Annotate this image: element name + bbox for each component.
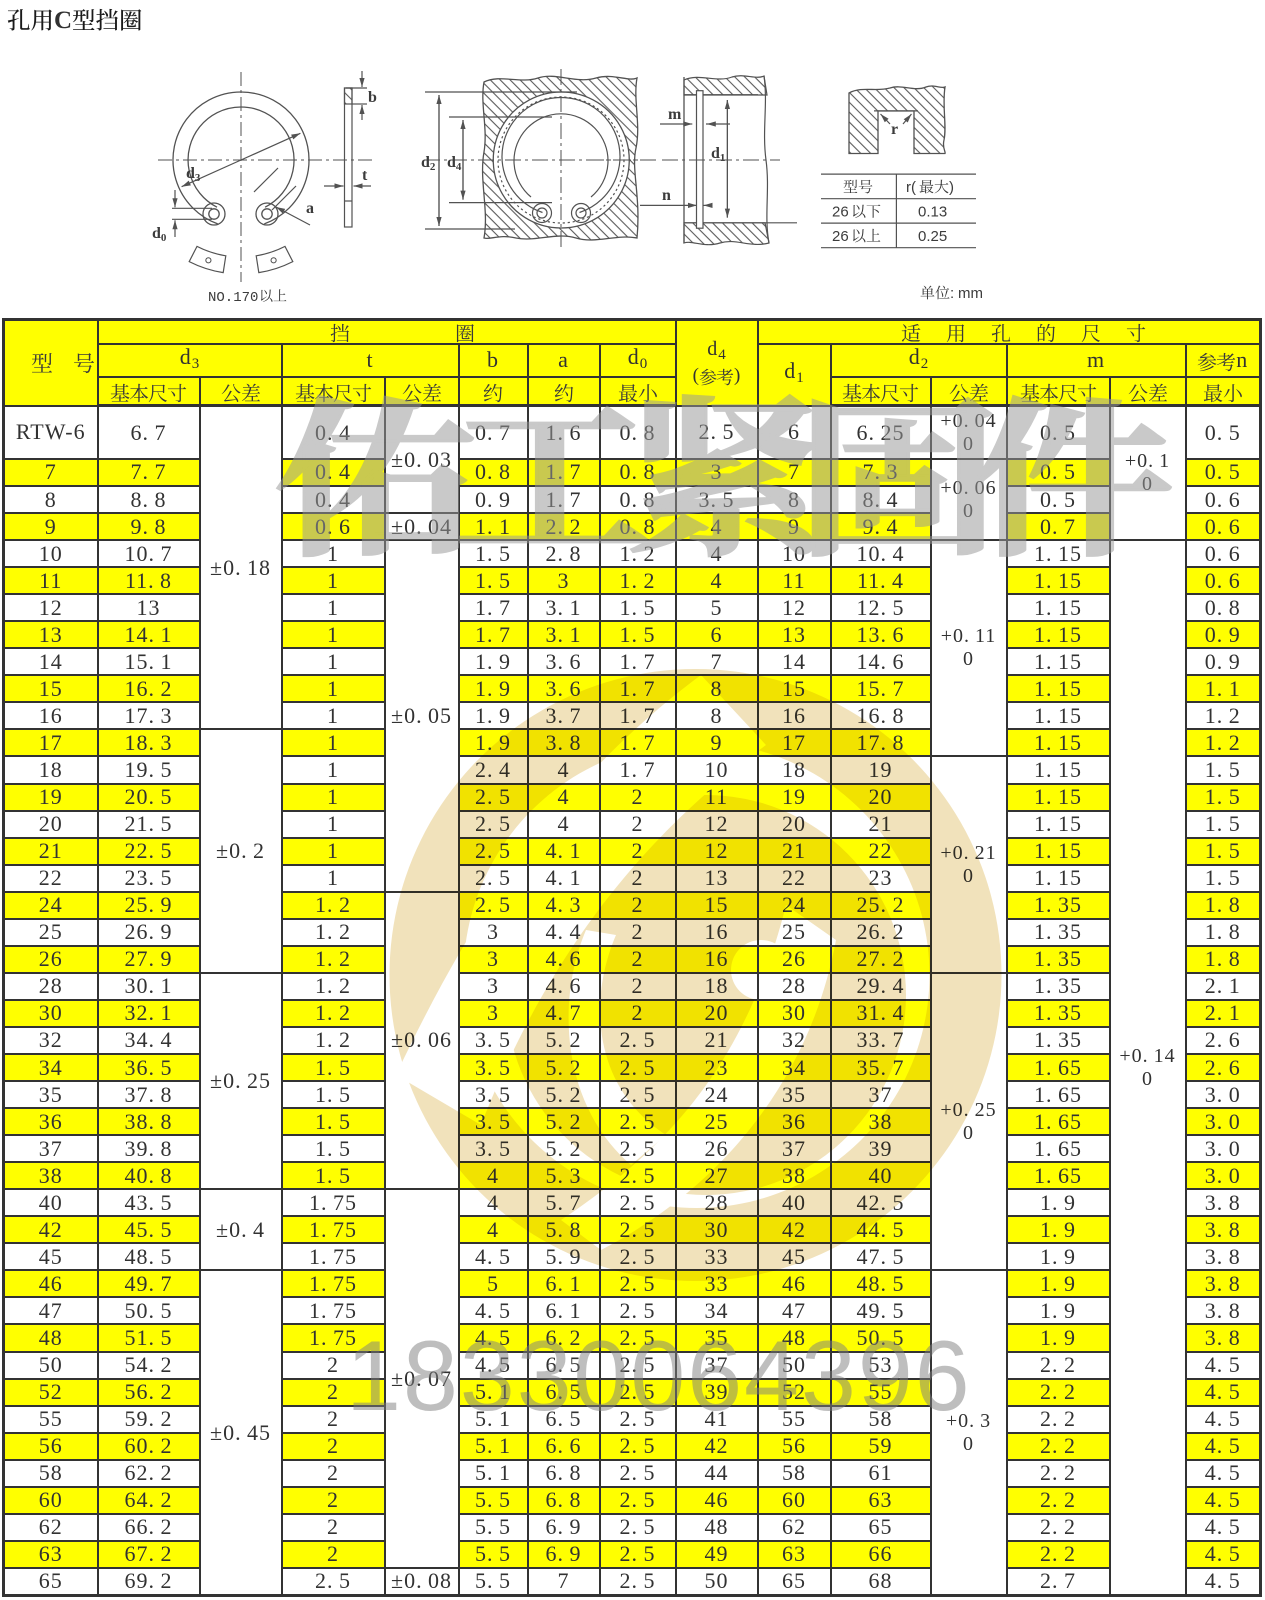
- svg-text:d0: d0: [152, 225, 167, 244]
- svg-text:b: b: [368, 89, 377, 106]
- svg-text:d2: d2: [421, 154, 436, 173]
- svg-text:r: r: [891, 121, 898, 138]
- svg-text:d4: d4: [447, 154, 462, 173]
- svg-text:n: n: [662, 187, 671, 204]
- svg-text:NO.170: NO.170: [208, 290, 258, 306]
- svg-text:26: 26: [832, 228, 849, 245]
- svg-text:m: m: [668, 106, 682, 123]
- svg-text:): ): [949, 179, 954, 196]
- svg-text:0.25: 0.25: [918, 228, 947, 245]
- svg-text:t: t: [362, 167, 368, 184]
- svg-text:a: a: [306, 200, 314, 217]
- svg-text:d3: d3: [186, 165, 201, 184]
- svg-text::: :: [950, 285, 954, 302]
- svg-text:0.13: 0.13: [918, 204, 947, 221]
- svg-text:26: 26: [832, 204, 849, 221]
- svg-text:d1: d1: [711, 145, 725, 164]
- svg-text:r(: r(: [906, 179, 916, 196]
- svg-text:mm: mm: [958, 285, 983, 302]
